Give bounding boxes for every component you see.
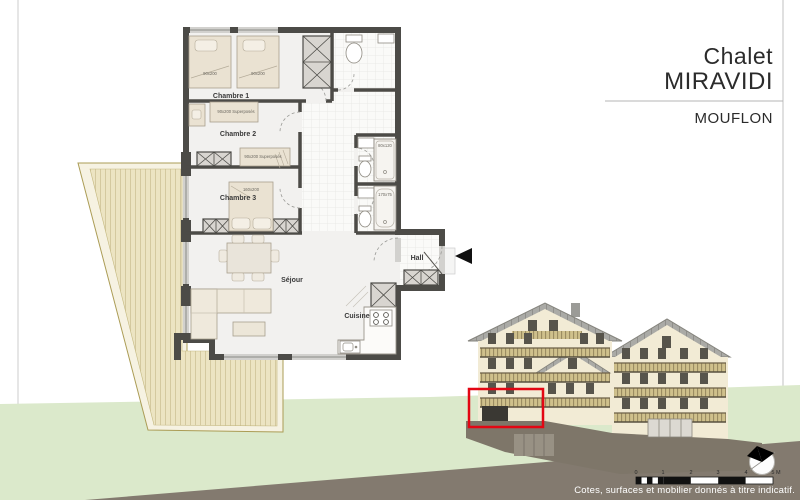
- room-label-chambre-1: Chambre 1: [213, 93, 249, 100]
- plan-sheet: Chambre 1 Chambre 2 Chambre 3 Séjour Cui…: [0, 0, 800, 500]
- bed2-dim-label: 90x200: [251, 71, 265, 76]
- scale-tick-1: 1: [661, 470, 664, 476]
- room-label-hall: Hall: [411, 255, 424, 262]
- room-label-sejour: Séjour: [281, 277, 303, 284]
- room-label-chambre-2: Chambre 2: [220, 131, 256, 138]
- scale-tick-2: 2: [689, 470, 692, 476]
- room-label-cuisine: Cuisine: [344, 313, 369, 320]
- title-block: Chalet MIRAVIDI: [664, 44, 773, 95]
- floor-plan: Chambre 1 Chambre 2 Chambre 3 Séjour Cui…: [174, 30, 472, 360]
- bunk2-dim-label: 90x200 Superposés: [244, 154, 281, 159]
- bunk1-dim-label: 90x200 Superposés: [217, 109, 254, 114]
- scale-tick-4: 4: [744, 470, 747, 476]
- project-title-line1: Chalet: [664, 44, 773, 69]
- project-title-line2: MIRAVIDI: [664, 69, 773, 95]
- bathtub-dim-label: 170x75: [378, 192, 392, 197]
- scale-tick-0: 0: [634, 470, 637, 476]
- chimney: [571, 303, 580, 317]
- shower-dim-label: 80x120: [378, 143, 392, 148]
- entrance-arrow: [455, 248, 472, 264]
- room-label-chambre-3: Chambre 3: [220, 195, 256, 202]
- scale-tick-3: 3: [716, 470, 719, 476]
- bed1-dim-label: 90x200: [203, 71, 217, 76]
- apartment-name: MOUFLON: [695, 110, 774, 127]
- building-elevation: [466, 303, 762, 474]
- scale-tick-5: 5 M: [771, 470, 781, 476]
- disclaimer-text: Cotes, surfaces et mobilier donnés à tit…: [574, 485, 795, 496]
- double-bed-dim-label: 160x200: [243, 187, 260, 192]
